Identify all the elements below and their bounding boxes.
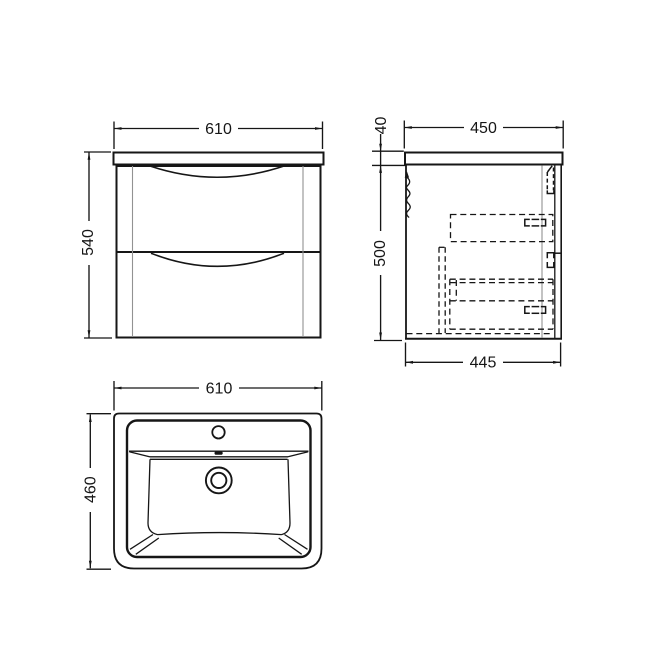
svg-text:610: 610 [206, 381, 233, 398]
svg-text:445: 445 [470, 355, 497, 372]
svg-text:40: 40 [373, 117, 390, 135]
svg-text:500: 500 [372, 240, 389, 267]
svg-text:450: 450 [470, 120, 497, 137]
svg-text:540: 540 [80, 229, 97, 256]
svg-text:460: 460 [82, 476, 99, 503]
svg-text:610: 610 [205, 121, 232, 138]
